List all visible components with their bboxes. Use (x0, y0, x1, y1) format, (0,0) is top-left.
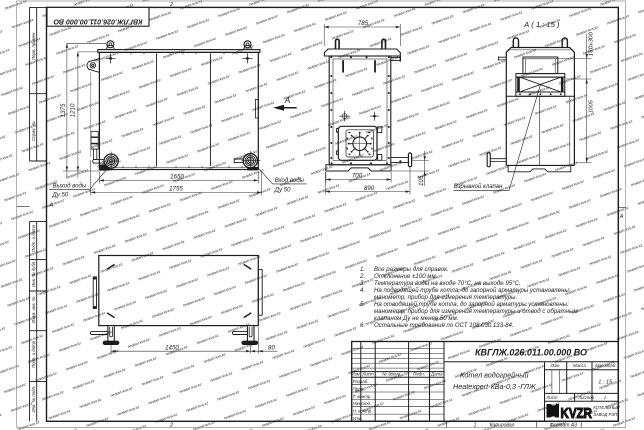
svg-text:Инв. № дубл.: Инв. № дубл. (31, 261, 36, 287)
svg-text:80: 80 (268, 345, 275, 352)
svg-text:Ду 50: Ду 50 (52, 193, 69, 199)
svg-text:Котел водогрейный: Котел водогрейный (460, 370, 528, 379)
svg-text:Все размеры для справок.: Все размеры для справок. (374, 266, 449, 273)
svg-text:1650: 1650 (170, 174, 184, 181)
svg-text:Лист: Лист (361, 372, 374, 377)
svg-text:785: 785 (358, 20, 369, 27)
svg-text:Листов: Листов (577, 395, 594, 400)
svg-text:2: 2 (169, 2, 173, 8)
svg-text:700: 700 (352, 173, 363, 180)
svg-text:Вход воды: Вход воды (275, 178, 305, 184)
svg-text:КВГЛЖ.026.011.00.000 ВО: КВГЛЖ.026.011.00.000 ВО (53, 18, 142, 27)
svg-text:манометр, прибор для измерения: манометр, прибор для измерения температу… (374, 308, 579, 315)
svg-text:Подп. и дата: Подп. и дата (31, 340, 36, 368)
svg-text:1: 1 (474, 422, 477, 428)
svg-text:Формат А3: Формат А3 (550, 422, 578, 428)
svg-text:890: 890 (364, 185, 375, 192)
svg-text:Лит.: Лит. (550, 363, 561, 368)
svg-text:Выход воды: Выход воды (53, 183, 87, 189)
svg-text:2: 2 (169, 422, 173, 428)
svg-text:Взрывной клапан: Взрывной клапан (454, 183, 503, 190)
svg-text:1755: 1755 (169, 186, 183, 193)
svg-text:Масштаб: Масштаб (595, 363, 616, 368)
svg-text:Отклонение ±100 мм.: Отклонение ±100 мм. (374, 273, 437, 280)
svg-text:Подп.: Подп. (413, 372, 425, 377)
svg-text:А ( 1 : 15 ): А ( 1 : 15 ) (523, 20, 560, 29)
svg-text:Инв. № подл.: Инв. № подл. (31, 386, 36, 413)
svg-text:1 : 15: 1 : 15 (598, 379, 613, 385)
svg-text:150х300: 150х300 (589, 31, 595, 56)
svg-text:Перв. примен.: Перв. примен. (31, 31, 36, 60)
svg-text:Остальные требования по ОСТ 10: Остальные требования по ОСТ 108.030.133-… (374, 322, 514, 329)
svg-text:Пров.: Пров. (353, 387, 365, 392)
svg-text:Копировал: Копировал (490, 422, 515, 428)
svg-text:клапаном Ду не менее 50 мм.: клапаном Ду не менее 50 мм. (374, 315, 458, 322)
svg-text:Температура воды на входе 70°С: Температура воды на входе 70°С, на выход… (374, 280, 521, 287)
svg-text:КОТЕЛЬНЫЙ: КОТЕЛЬНЫЙ (593, 405, 619, 410)
svg-text:105: 105 (418, 175, 425, 186)
svg-text:3.: 3. (360, 280, 365, 287)
svg-text:5.: 5. (360, 301, 365, 308)
svg-text:На отводящей трубе котла, до з: На отводящей трубе котла, до запорной ар… (374, 301, 569, 308)
svg-text:№ докум.: № докум. (382, 372, 401, 377)
svg-text:А: А (619, 214, 624, 220)
svg-text:Подп. и дата: Подп. и дата (31, 224, 36, 252)
svg-text:манометр, прибор для измерения: манометр, прибор для измерения температу… (374, 294, 517, 301)
svg-text:6.: 6. (360, 322, 365, 329)
svg-text:На подводящей трубе котла, до: На подводящей трубе котла, до запорной а… (374, 287, 571, 294)
svg-text:Лист: Лист (545, 395, 557, 400)
svg-text:Изм.: Изм. (352, 372, 361, 377)
svg-text:Масса: Масса (573, 363, 586, 368)
svg-text:1005: 1005 (589, 99, 595, 113)
svg-text:1210: 1210 (70, 103, 77, 117)
svg-text:1375: 1375 (60, 103, 67, 117)
svg-text:Дата: Дата (430, 372, 443, 377)
svg-text:1.: 1. (360, 266, 365, 273)
svg-text:А: А (49, 203, 54, 209)
svg-text:Утв.: Утв. (353, 416, 363, 421)
svg-text:КВГЛЖ.026.011.00.000 ВО: КВГЛЖ.026.011.00.000 ВО (475, 348, 587, 358)
svg-text:Нач.отд.: Нач.отд. (353, 401, 372, 406)
svg-text:ЗАВОД РЭП: ЗАВОД РЭП (593, 412, 618, 417)
svg-text:2.: 2. (359, 273, 365, 280)
svg-text:Разраб.: Разраб. (353, 379, 369, 384)
svg-text:1450: 1450 (165, 344, 179, 351)
svg-text:Н. контр.: Н. контр. (353, 409, 373, 414)
svg-text:KVZR: KVZR (561, 406, 593, 422)
svg-text:4.: 4. (360, 287, 365, 294)
svg-text:Взам. инв. №: Взам. инв. № (31, 296, 36, 323)
svg-text:Справ. №: Справ. № (31, 121, 36, 141)
svg-text:А: А (284, 95, 291, 105)
svg-text:Ду 50: Ду 50 (274, 187, 291, 193)
svg-text:Т. контр.: Т. контр. (353, 394, 372, 399)
svg-text:Heatexpert-КВа-0,3 -ГЛЖ: Heatexpert-КВа-0,3 -ГЛЖ (453, 382, 536, 391)
